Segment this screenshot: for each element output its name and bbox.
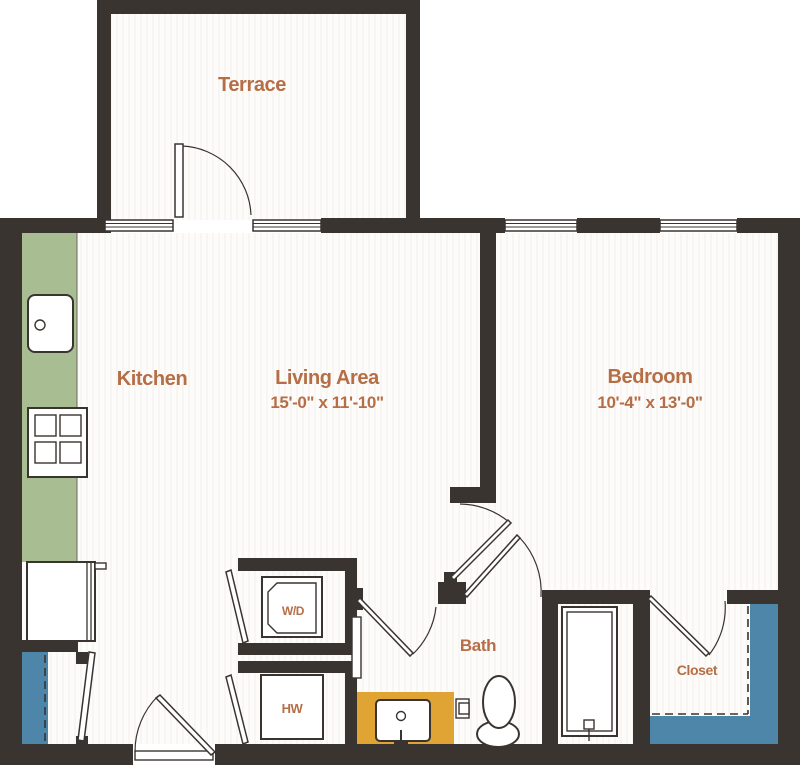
right-wall <box>778 218 800 765</box>
kitchen-counter <box>22 233 77 562</box>
bedroom-window-left <box>505 220 577 231</box>
top-wall-segment <box>321 218 505 233</box>
washer-dryer-label: W/D <box>282 604 305 618</box>
burner <box>60 442 81 463</box>
sink-drain <box>397 712 406 721</box>
entry-threshold <box>135 751 213 760</box>
terrace-label: Terrace <box>218 74 286 96</box>
top-wall-segment <box>577 218 660 233</box>
terrace-wall-right <box>406 0 420 233</box>
closet-label: Closet <box>677 662 718 678</box>
laundry-closet-wall <box>238 643 357 655</box>
burner <box>35 415 56 436</box>
refrigerator-handle <box>95 563 106 569</box>
left-wall <box>0 218 22 765</box>
terrace-window-left <box>105 220 173 231</box>
sink-faucet-base <box>394 740 408 744</box>
kitchen-sink <box>28 295 73 352</box>
apartment-floor <box>22 233 778 744</box>
burner <box>60 415 81 436</box>
shower-closet-wall <box>633 590 650 744</box>
shower-drain <box>584 720 594 729</box>
terrace-wall-top <box>97 0 420 14</box>
bath-right-wall <box>542 590 558 744</box>
floor-plan: W/D HW <box>0 0 800 765</box>
toilet-paper-holder <box>456 699 469 718</box>
sink-faucet <box>35 320 45 330</box>
kitchen-label: Kitchen <box>117 368 188 390</box>
stove <box>28 408 87 477</box>
coat-closet-shelving <box>22 652 48 744</box>
living-area-dimensions: 15'-0" x 11'-10" <box>270 393 383 412</box>
living-bedroom-wall-step <box>450 487 496 503</box>
water-heater-closet-wall <box>238 661 357 673</box>
toilet-bowl <box>483 676 515 728</box>
hall-wall-stub <box>438 582 466 604</box>
water-heater: HW <box>261 675 323 739</box>
living-bedroom-wall <box>480 233 496 487</box>
terrace-window-right <box>253 220 321 231</box>
bedroom-bottom-wall <box>727 590 778 604</box>
bedroom-dimensions: 10'-4" x 13'-0" <box>597 393 702 412</box>
bedroom-window-right <box>660 220 737 231</box>
shower <box>562 607 617 741</box>
bathroom-sink <box>376 700 430 744</box>
terrace-wall-left <box>97 0 111 233</box>
laundry-closet-wall <box>238 558 357 571</box>
coat-closet-jamb <box>76 652 88 664</box>
water-heater-label: HW <box>282 701 304 716</box>
bedroom-label: Bedroom <box>608 366 693 388</box>
washer-dryer: W/D <box>262 577 322 637</box>
terrace-floor <box>111 14 406 220</box>
floor-plan-drawing: W/D HW <box>0 0 800 765</box>
bottom-wall-segment <box>215 744 800 765</box>
bath-label: Bath <box>460 636 496 655</box>
bath-wall-nook <box>352 617 361 678</box>
burner <box>35 442 56 463</box>
living-area-label: Living Area <box>275 367 380 389</box>
refrigerator <box>27 562 106 641</box>
bottom-wall-segment <box>0 744 133 765</box>
